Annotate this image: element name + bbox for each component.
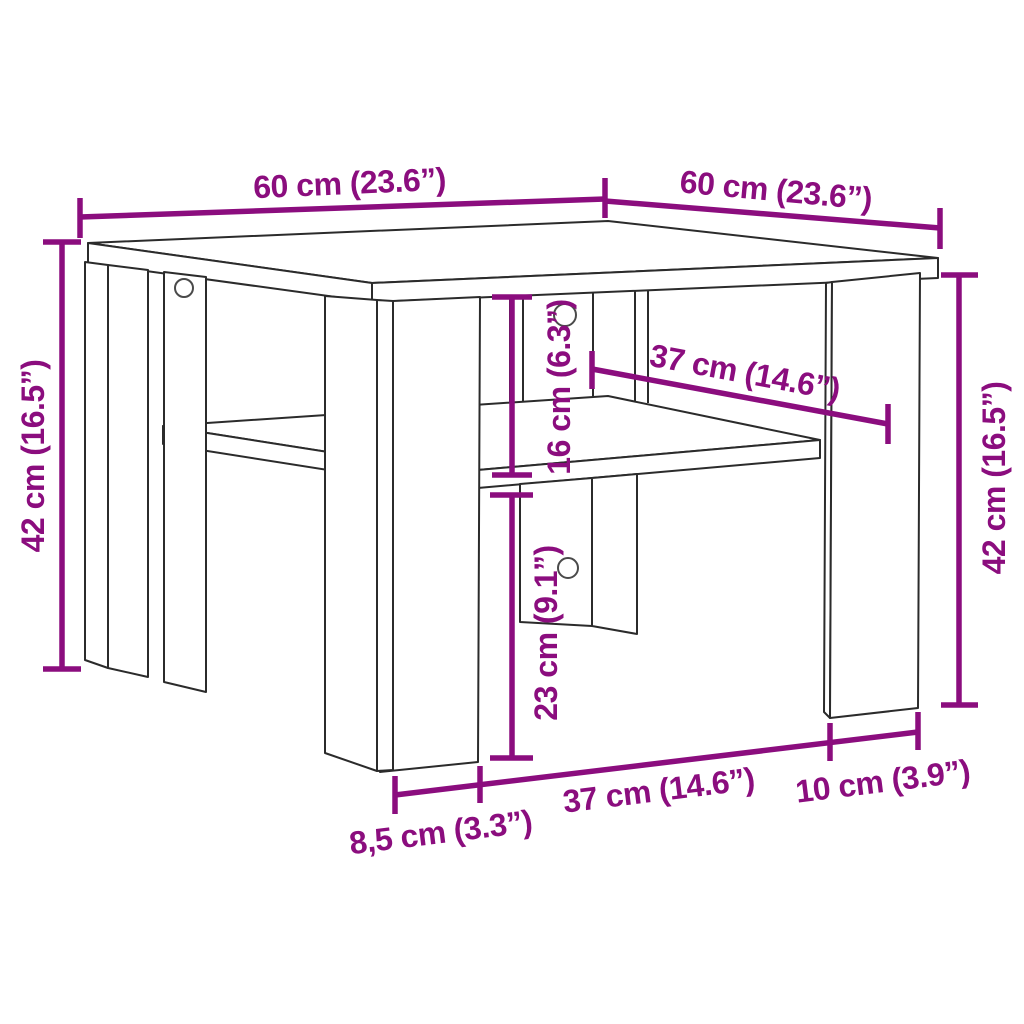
- dimension-diagram: 60 cm (23.6”) 60 cm (23.6”) 42 cm (16.5”…: [0, 0, 1024, 1024]
- dim-line: [80, 199, 605, 217]
- label-height-left: 42 cm (16.5”): [15, 360, 51, 553]
- front-leg-front-face: [325, 296, 377, 771]
- left-leg-inner-board: [164, 272, 206, 692]
- right-leg-front-face: [830, 273, 920, 718]
- back-leg-lower-side: [592, 474, 637, 634]
- right-leg: [824, 273, 920, 718]
- tabletop: [88, 221, 938, 302]
- label-bottom-leg-depth: 8,5 cm (3.3”): [347, 803, 534, 861]
- label-bottom-leg-width: 10 cm (3.9”): [793, 753, 972, 810]
- label-top-width-left: 60 cm (23.6”): [252, 161, 446, 205]
- front-leg-side-face: [377, 300, 393, 771]
- coffee-table-diagram-svg: 60 cm (23.6”) 60 cm (23.6”) 42 cm (16.5”…: [0, 0, 1024, 1024]
- front-leg-inner-board: [380, 297, 480, 772]
- label-under-shelf: 23 cm (9.1”): [528, 545, 564, 720]
- label-height-right: 42 cm (16.5”): [976, 382, 1012, 575]
- back-leg-upper: [510, 290, 648, 403]
- left-leg-front-face: [108, 265, 148, 677]
- label-shelf-clearance: 16 cm (6.3”): [541, 299, 577, 474]
- shelf: [163, 396, 820, 490]
- dim-height-right: [941, 275, 978, 705]
- left-leg-side-face: [85, 262, 108, 668]
- left-leg: [85, 262, 206, 692]
- front-leg: [325, 296, 480, 772]
